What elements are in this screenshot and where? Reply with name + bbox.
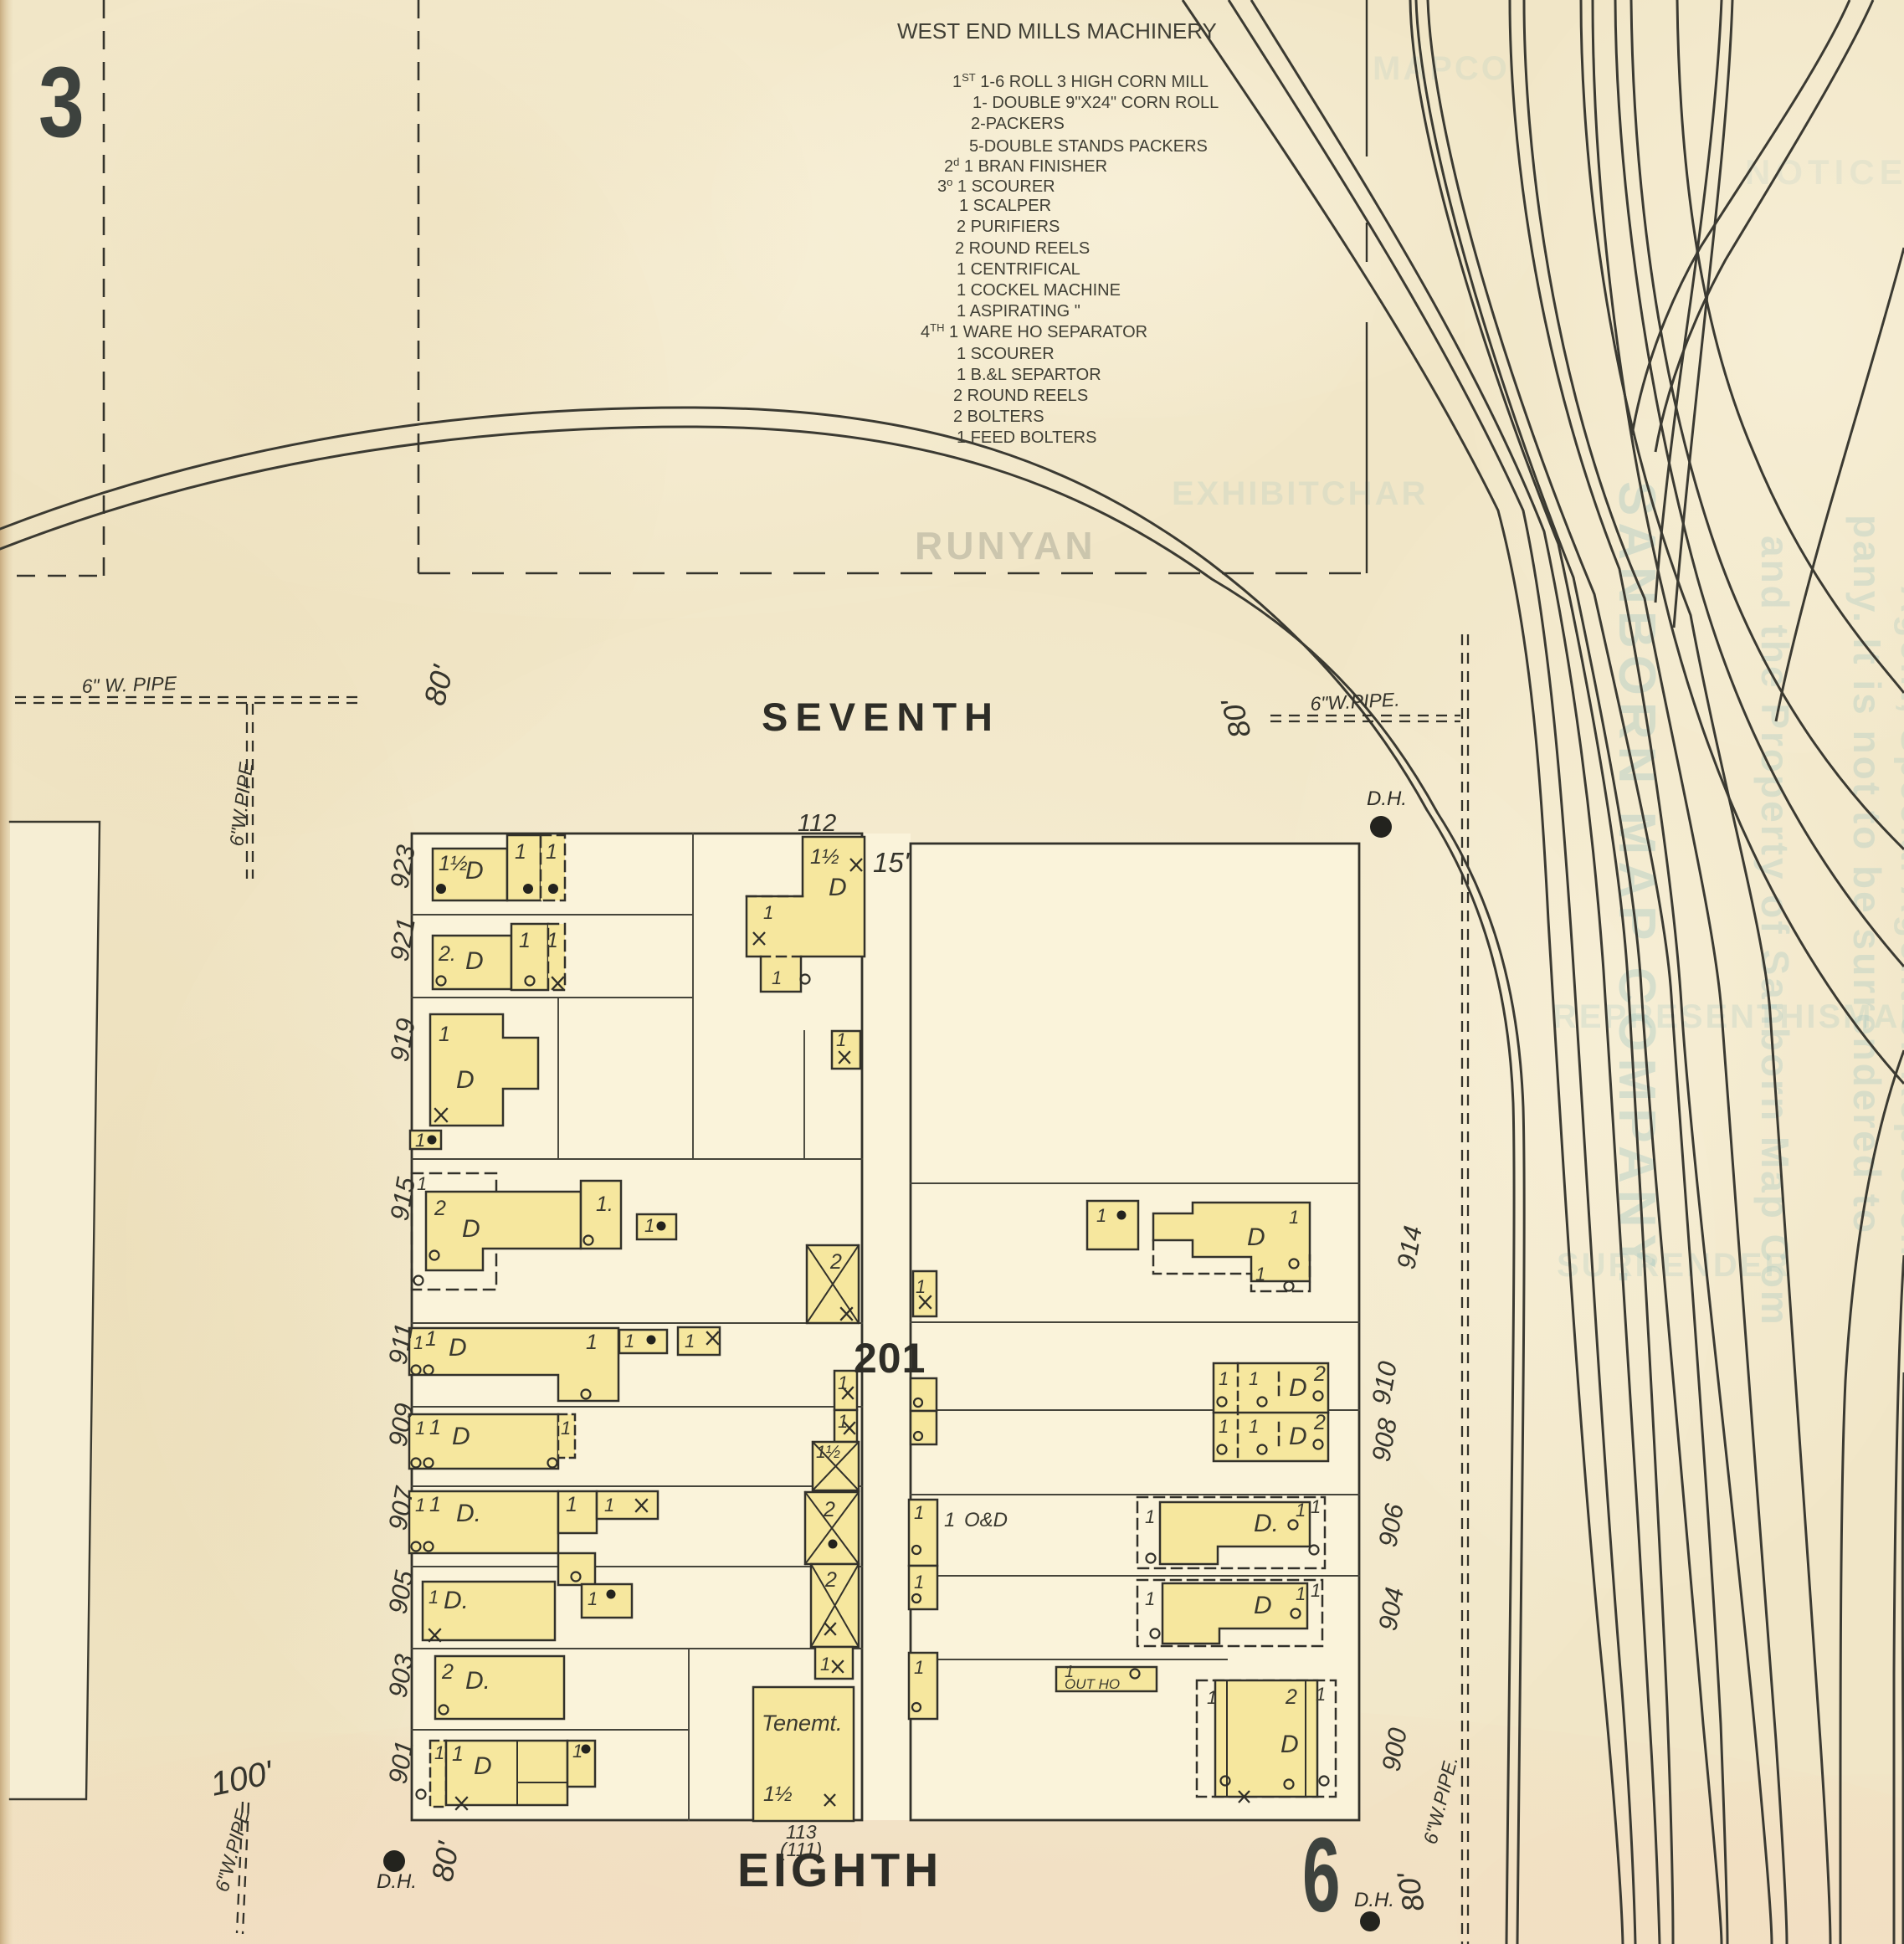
svg-text:1: 1	[820, 1654, 830, 1675]
svg-text:1: 1	[763, 902, 773, 923]
svg-text:1: 1	[425, 1327, 437, 1351]
svg-text:3o 1 SCOURER: 3o 1 SCOURER	[937, 176, 1055, 196]
svg-text:1: 1	[1219, 1416, 1229, 1437]
svg-text:1: 1	[1296, 1500, 1306, 1521]
svg-text:D: D	[449, 1334, 467, 1362]
svg-text:1: 1	[429, 1493, 441, 1516]
svg-text:1: 1	[772, 967, 782, 988]
svg-text:1: 1	[838, 1372, 848, 1393]
svg-text:1: 1	[604, 1495, 614, 1516]
svg-text:1: 1	[1249, 1368, 1259, 1389]
svg-text:D.: D.	[465, 1667, 490, 1695]
svg-text:1 COCKEL MACHINE: 1 COCKEL MACHINE	[957, 281, 1121, 300]
svg-text:RUNYAN: RUNYAN	[915, 524, 1096, 567]
svg-text:2d 1 BRAN FINISHER: 2d 1 BRAN FINISHER	[944, 156, 1107, 176]
svg-text:EXHIBITCHAR: EXHIBITCHAR	[1172, 475, 1428, 512]
svg-text:1: 1	[561, 1418, 571, 1439]
svg-text:4TH 1 WARE HO SEPARATOR: 4TH 1 WARE HO SEPARATOR	[921, 321, 1147, 341]
svg-text:OUT HO: OUT HO	[1065, 1676, 1120, 1692]
svg-text:D: D	[465, 857, 484, 885]
svg-text:3: 3	[38, 47, 85, 158]
svg-text:1: 1	[644, 1215, 654, 1236]
svg-text:2: 2	[823, 1498, 835, 1521]
svg-text:1 ASPIRATING ": 1 ASPIRATING "	[957, 302, 1080, 321]
svg-text:1: 1	[1207, 1687, 1217, 1708]
svg-text:1: 1	[685, 1331, 695, 1352]
svg-text:80': 80'	[425, 1839, 466, 1884]
svg-text:2: 2	[829, 1250, 842, 1274]
svg-text:1 SCOURER: 1 SCOURER	[957, 345, 1055, 363]
svg-text:D: D	[1280, 1731, 1299, 1758]
svg-text:O&D: O&D	[964, 1509, 1008, 1531]
svg-text:2 ROUND REELS: 2 ROUND REELS	[955, 239, 1090, 258]
svg-text:1: 1	[429, 1587, 439, 1608]
svg-text:1: 1	[1316, 1684, 1326, 1705]
svg-text:80': 80'	[1390, 1869, 1431, 1914]
svg-text:(111): (111)	[780, 1839, 822, 1860]
svg-text:6: 6	[1302, 1816, 1341, 1934]
svg-text:1: 1	[547, 929, 558, 952]
svg-text:2 BOLTERS: 2 BOLTERS	[953, 408, 1044, 426]
svg-text:1: 1	[1311, 1496, 1321, 1517]
svg-text:1: 1	[572, 1741, 582, 1762]
svg-text:2: 2	[1313, 1362, 1326, 1386]
svg-text:1: 1	[415, 1495, 425, 1516]
svg-text:1- DOUBLE 9"X24" CORN ROLL: 1- DOUBLE 9"X24" CORN ROLL	[973, 94, 1219, 112]
svg-text:1: 1	[515, 840, 526, 864]
svg-text:201: 201	[854, 1335, 926, 1382]
svg-text:1: 1	[1145, 1506, 1155, 1527]
svg-text:D: D	[1254, 1592, 1272, 1619]
svg-text:1: 1	[624, 1331, 634, 1352]
svg-text:1: 1	[1255, 1264, 1265, 1285]
svg-text:1: 1	[1096, 1205, 1106, 1226]
svg-text:1: 1	[916, 1276, 926, 1297]
svg-text:D.H.: D.H.	[1367, 787, 1407, 810]
svg-text:EIGHTH: EIGHTH	[737, 1844, 942, 1897]
svg-text:1: 1	[415, 1418, 425, 1439]
svg-text:SEVENTH: SEVENTH	[762, 695, 1000, 739]
svg-text:2 ROUND REELS: 2 ROUND REELS	[953, 387, 1088, 405]
svg-text:D: D	[1289, 1374, 1307, 1402]
svg-text:D.: D.	[444, 1587, 469, 1614]
svg-text:D: D	[1289, 1423, 1307, 1450]
svg-text:1: 1	[1249, 1416, 1259, 1437]
svg-text:1: 1	[1289, 1207, 1299, 1228]
svg-text:1: 1	[1296, 1583, 1306, 1604]
svg-text:D: D	[452, 1423, 470, 1450]
svg-text:D.H.: D.H.	[377, 1870, 417, 1893]
svg-text:2: 2	[824, 1568, 837, 1592]
svg-text:5-DOUBLE STANDS PACKERS: 5-DOUBLE STANDS PACKERS	[969, 137, 1208, 156]
svg-text:112: 112	[798, 810, 836, 837]
svg-text:1: 1	[415, 1130, 425, 1151]
svg-text:1: 1	[914, 1572, 924, 1593]
svg-text:6" W. PIPE: 6" W. PIPE	[81, 672, 177, 697]
svg-text:1: 1	[429, 1416, 441, 1439]
svg-text:1: 1	[1219, 1368, 1229, 1389]
svg-text:2: 2	[1313, 1411, 1326, 1434]
svg-text:2: 2	[441, 1660, 454, 1684]
svg-text:1: 1	[566, 1493, 577, 1516]
svg-text:1: 1	[944, 1509, 955, 1531]
svg-text:D: D	[1247, 1223, 1265, 1251]
svg-text:1½: 1½	[439, 852, 468, 875]
svg-text:1: 1	[1311, 1580, 1321, 1601]
svg-text:D.H.: D.H.	[1354, 1889, 1394, 1911]
svg-text:pany. It is not to be surrende: pany. It is not to be surrendered to	[1845, 515, 1889, 1235]
svg-text:D: D	[456, 1066, 475, 1094]
svg-text:1 SCALPER: 1 SCALPER	[959, 197, 1051, 215]
svg-text:1: 1	[434, 1742, 444, 1763]
svg-text:1: 1	[417, 1173, 427, 1194]
svg-text:1: 1	[588, 1588, 598, 1609]
svg-text:2: 2	[434, 1197, 446, 1220]
svg-text:1: 1	[1145, 1588, 1155, 1609]
svg-text:D.: D.	[1254, 1510, 1279, 1537]
svg-text:2 PURIFIERS: 2 PURIFIERS	[957, 218, 1060, 236]
svg-text:WEST END MILLS MACHINERY: WEST END MILLS MACHINERY	[897, 18, 1217, 44]
svg-text:1: 1	[519, 929, 531, 952]
svg-text:1: 1	[836, 1029, 846, 1050]
svg-text:2: 2	[1285, 1685, 1297, 1709]
svg-text:D: D	[465, 947, 484, 975]
svg-text:1: 1	[838, 1411, 848, 1432]
svg-text:1 B.&L SEPARTOR: 1 B.&L SEPARTOR	[957, 366, 1101, 384]
svg-text:1: 1	[546, 840, 557, 864]
svg-text:D: D	[462, 1215, 480, 1243]
svg-text:1½: 1½	[810, 845, 839, 869]
svg-text:D: D	[829, 874, 847, 901]
svg-text:1: 1	[439, 1023, 450, 1046]
svg-text:D: D	[474, 1752, 492, 1780]
svg-text:1ST 1-6 ROLL 3 HIGH CORN MILL: 1ST 1-6 ROLL 3 HIGH CORN MILL	[952, 71, 1209, 91]
svg-text:1: 1	[413, 1332, 423, 1353]
svg-text:1½: 1½	[763, 1782, 793, 1806]
svg-text:1: 1	[452, 1742, 464, 1766]
svg-text:1½: 1½	[816, 1443, 840, 1462]
svg-text:2-PACKERS: 2-PACKERS	[971, 115, 1065, 133]
svg-text:MAPCO: MAPCO	[1373, 50, 1510, 87]
svg-text:1: 1	[586, 1331, 598, 1354]
svg-text:2.: 2.	[438, 942, 456, 966]
svg-text:1 CENTRIFICAL: 1 CENTRIFICAL	[957, 260, 1080, 279]
svg-text:1: 1	[914, 1657, 924, 1678]
svg-text:1 FEED BOLTERS: 1 FEED BOLTERS	[957, 428, 1096, 447]
svg-text:D.: D.	[456, 1500, 481, 1527]
svg-text:1.: 1.	[596, 1193, 613, 1216]
svg-text:15': 15'	[873, 847, 911, 878]
svg-text:1: 1	[914, 1502, 924, 1523]
svg-text:Agent, Special Agent or Repres: Agent, Special Agent or Represent	[1893, 586, 1904, 1273]
svg-text:Tenemt.: Tenemt.	[762, 1711, 843, 1736]
